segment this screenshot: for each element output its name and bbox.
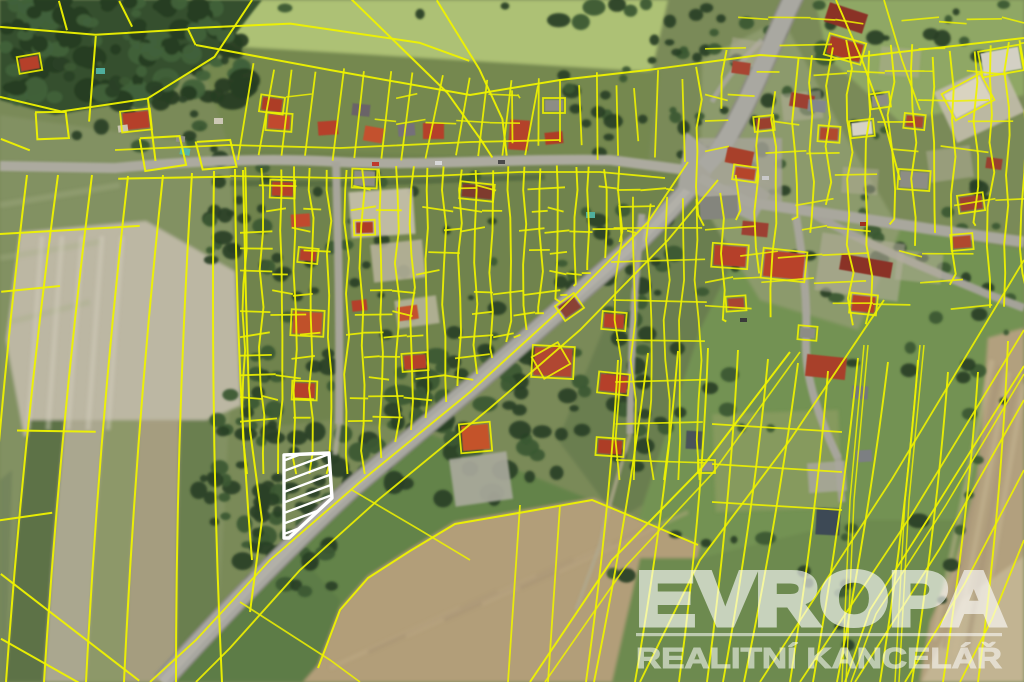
svg-text:EVROPA: EVROPA <box>636 557 1006 642</box>
svg-text:REALITNÍ KANCELÁŘ: REALITNÍ KANCELÁŘ <box>636 641 1002 675</box>
